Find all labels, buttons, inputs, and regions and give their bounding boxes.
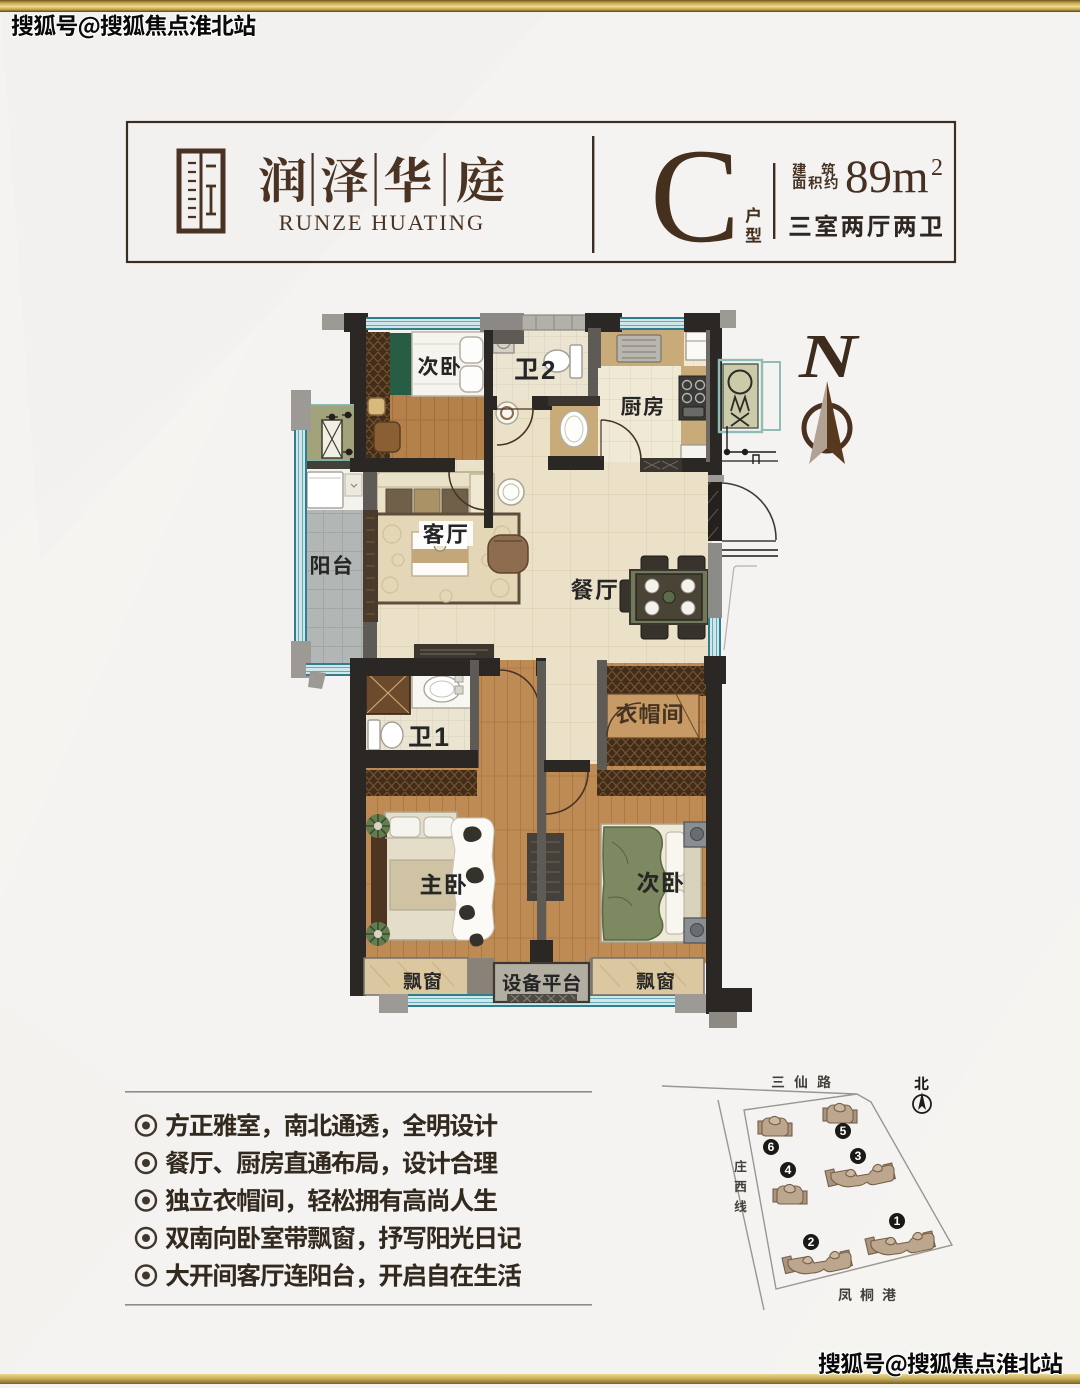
svg-text:C: C [650, 122, 740, 271]
svg-text:1: 1 [434, 722, 449, 752]
svg-text:RUNZE HUATING: RUNZE HUATING [279, 210, 486, 235]
svg-text:4: 4 [785, 1163, 792, 1177]
svg-text:6: 6 [768, 1140, 775, 1154]
svg-text:89m: 89m [845, 151, 929, 203]
svg-text:1: 1 [894, 1214, 901, 1228]
svg-text:2: 2 [541, 355, 555, 385]
svg-text:5: 5 [840, 1124, 847, 1138]
svg-text:2: 2 [808, 1235, 815, 1249]
svg-text:3: 3 [855, 1149, 862, 1163]
svg-text:N: N [798, 322, 861, 391]
svg-text:2: 2 [931, 155, 943, 181]
